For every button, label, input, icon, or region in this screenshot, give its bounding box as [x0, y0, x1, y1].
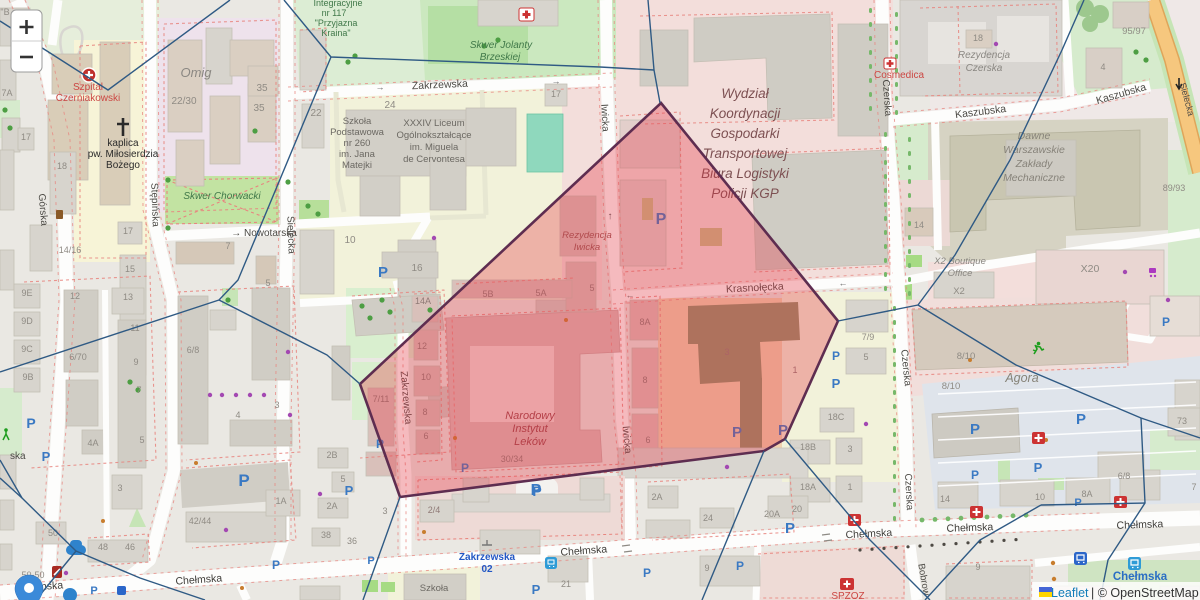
svg-text:Matejki: Matejki: [342, 160, 372, 171]
svg-text:P: P: [785, 520, 795, 537]
svg-text:14: 14: [940, 494, 950, 504]
svg-text:Szkoła: Szkoła: [343, 116, 372, 127]
svg-text:P: P: [1076, 411, 1086, 428]
svg-text:Czerniakowski: Czerniakowski: [56, 93, 120, 104]
svg-text:17: 17: [123, 226, 133, 236]
svg-text:3: 3: [382, 506, 387, 516]
svg-text:13: 13: [123, 292, 133, 302]
svg-text:24: 24: [384, 100, 396, 111]
svg-text:4: 4: [235, 410, 240, 420]
svg-text:1A: 1A: [275, 496, 286, 506]
svg-text:Integracyjne: Integracyjne: [313, 0, 362, 8]
svg-text:Szkoła: Szkoła: [420, 583, 449, 594]
svg-text:Mechaniczne: Mechaniczne: [1003, 172, 1065, 184]
svg-text:P: P: [367, 555, 374, 567]
svg-text:Leaflet: Leaflet: [1051, 586, 1089, 600]
svg-text:6/8: 6/8: [187, 345, 200, 355]
svg-text:15: 15: [125, 264, 135, 274]
svg-text:8/10: 8/10: [957, 351, 976, 362]
svg-text:"Przyjazna: "Przyjazna: [315, 18, 358, 28]
svg-text:Iwicka: Iwicka: [598, 104, 610, 133]
svg-text:4A: 4A: [87, 438, 98, 448]
svg-text:P: P: [42, 449, 51, 464]
svg-text:42/44: 42/44: [189, 516, 212, 526]
svg-text:38: 38: [321, 530, 331, 540]
svg-text:2A: 2A: [651, 492, 662, 502]
svg-text:P: P: [643, 566, 651, 580]
svg-text:Kraina": Kraina": [321, 28, 350, 38]
svg-text:P: P: [736, 559, 744, 573]
svg-text:SPZOZ: SPZOZ: [831, 591, 864, 600]
svg-text:7: 7: [225, 241, 230, 251]
svg-text:18: 18: [57, 161, 67, 171]
svg-text:Ogólnokształcące: Ogólnokształcące: [397, 130, 472, 141]
svg-text:3: 3: [847, 444, 852, 454]
svg-text:5: 5: [265, 278, 270, 288]
svg-text:95/97: 95/97: [1122, 26, 1146, 37]
svg-text:P: P: [832, 376, 841, 391]
svg-text:9: 9: [704, 563, 709, 573]
svg-text:9B: 9B: [22, 372, 33, 382]
svg-text:6/8: 6/8: [1118, 471, 1131, 481]
svg-text:Gospodarki: Gospodarki: [710, 126, 780, 141]
svg-text:P: P: [26, 415, 35, 431]
svg-text:18B: 18B: [800, 442, 816, 452]
svg-text:14A: 14A: [415, 296, 431, 306]
svg-text:Podstawowa: Podstawowa: [330, 127, 385, 138]
svg-text:1: 1: [847, 482, 852, 492]
svg-text:12: 12: [70, 291, 80, 301]
svg-text:Bożego: Bożego: [106, 160, 140, 171]
svg-text:Cosmedica: Cosmedica: [874, 70, 924, 81]
svg-text:7: 7: [136, 385, 141, 395]
svg-text:5: 5: [139, 435, 144, 445]
svg-text:im. Jana: im. Jana: [339, 149, 376, 160]
svg-text:9: 9: [975, 562, 980, 572]
svg-text:22: 22: [310, 108, 322, 119]
svg-text:8/10: 8/10: [942, 381, 961, 392]
svg-text:Wydział: Wydział: [721, 86, 769, 101]
svg-text:Koordynacji: Koordynacji: [710, 106, 782, 121]
svg-text:nr 260: nr 260: [344, 138, 371, 149]
svg-text:3: 3: [117, 483, 122, 493]
svg-text:2A: 2A: [326, 501, 337, 511]
svg-text:"B: "B: [0, 7, 9, 17]
svg-text:Czerska: Czerska: [966, 63, 1003, 74]
svg-text:Czerska: Czerska: [902, 473, 915, 511]
svg-text:Chełmska: Chełmska: [1116, 518, 1163, 532]
svg-text:24: 24: [703, 513, 713, 523]
svg-text:P: P: [970, 421, 980, 438]
svg-text:17: 17: [21, 132, 31, 142]
svg-text:→ Nowotarska: → Nowotarska: [231, 228, 297, 239]
svg-text:3: 3: [274, 400, 279, 410]
svg-text:18C: 18C: [828, 412, 845, 422]
svg-text:P: P: [345, 483, 354, 498]
svg-text:Chełmska: Chełmska: [946, 521, 993, 535]
svg-text:9E: 9E: [21, 288, 32, 298]
svg-text:35: 35: [256, 83, 268, 94]
svg-text:Chełmska: Chełmska: [1113, 571, 1168, 583]
svg-text:Stępińska: Stępińska: [148, 183, 161, 228]
svg-text:6/70: 6/70: [69, 352, 87, 362]
svg-text:10: 10: [344, 235, 356, 246]
svg-text:Zakrzewska: Zakrzewska: [412, 78, 469, 92]
svg-text:7A: 7A: [1, 88, 12, 98]
svg-text:de Cervontesa: de Cervontesa: [403, 154, 466, 165]
svg-text:im. Miguela: im. Miguela: [410, 142, 459, 153]
svg-text:P: P: [1162, 315, 1170, 329]
svg-text:X2: X2: [953, 286, 965, 297]
svg-text:9: 9: [133, 357, 138, 367]
svg-text:pw. Miłosierdzia: pw. Miłosierdzia: [88, 149, 159, 160]
svg-text:18A: 18A: [800, 482, 816, 492]
svg-text:P: P: [832, 349, 840, 363]
svg-text:Rezydencja: Rezydencja: [958, 50, 1011, 61]
svg-text:Skwer Jolanty: Skwer Jolanty: [470, 40, 533, 51]
svg-text:Skwer Chorwacki: Skwer Chorwacki: [183, 191, 261, 202]
svg-text:Transportowej: Transportowej: [703, 146, 789, 161]
svg-text:9C: 9C: [21, 344, 33, 354]
svg-text:kaplica: kaplica: [107, 138, 139, 149]
svg-text:50: 50: [48, 528, 58, 538]
svg-text:14/16: 14/16: [59, 245, 82, 255]
svg-text:P: P: [90, 585, 97, 597]
svg-text:P: P: [238, 471, 249, 490]
svg-text:P: P: [532, 483, 541, 499]
svg-text:P: P: [272, 558, 280, 572]
svg-text:17: 17: [551, 89, 561, 99]
svg-text:Zakrzewska: Zakrzewska: [459, 552, 516, 563]
svg-text:→: →: [376, 82, 385, 92]
svg-text:36: 36: [347, 536, 357, 546]
svg-text:18: 18: [973, 33, 983, 43]
svg-text:2/4: 2/4: [428, 505, 441, 515]
svg-text:14: 14: [914, 220, 924, 230]
svg-text:7/9: 7/9: [862, 332, 875, 342]
svg-text:5: 5: [863, 352, 868, 362]
svg-text:21: 21: [561, 579, 571, 589]
svg-text:XXXIV Liceum: XXXIV Liceum: [403, 118, 464, 129]
svg-text:16: 16: [411, 263, 423, 274]
svg-text:Zakłady: Zakłady: [1015, 158, 1054, 170]
svg-text:Office: Office: [948, 268, 973, 279]
svg-text:Omig: Omig: [180, 65, 212, 80]
svg-text:73: 73: [1177, 416, 1187, 426]
svg-text:20: 20: [792, 504, 802, 514]
svg-text:46: 46: [125, 542, 135, 552]
svg-text:22/30: 22/30: [171, 96, 196, 107]
svg-text:P: P: [1034, 460, 1043, 475]
svg-text:←: ←: [839, 278, 848, 288]
svg-text:35: 35: [253, 103, 265, 114]
svg-text:20A: 20A: [764, 509, 780, 519]
svg-text:02: 02: [481, 564, 493, 575]
svg-text:→: →: [552, 76, 561, 86]
svg-text:9D: 9D: [21, 316, 33, 326]
svg-text:X2 Boutique: X2 Boutique: [933, 256, 986, 267]
svg-text:ska: ska: [10, 451, 26, 462]
svg-text:48: 48: [98, 542, 108, 552]
svg-text:| © OpenStreetMap: | © OpenStreetMap: [1091, 586, 1199, 600]
svg-text:2B: 2B: [326, 450, 337, 460]
svg-text:nr 117: nr 117: [322, 8, 347, 18]
svg-text:8A: 8A: [1081, 489, 1092, 499]
svg-text:Brzeskiej: Brzeskiej: [480, 52, 521, 63]
svg-text:10: 10: [1035, 492, 1045, 502]
svg-text:89/93: 89/93: [1163, 183, 1186, 193]
svg-text:P: P: [532, 582, 541, 597]
svg-text:P: P: [971, 468, 979, 482]
svg-text:4: 4: [1100, 62, 1105, 72]
svg-text:P: P: [378, 264, 388, 281]
svg-text:7: 7: [1191, 482, 1196, 492]
svg-text:X20: X20: [1081, 263, 1100, 275]
